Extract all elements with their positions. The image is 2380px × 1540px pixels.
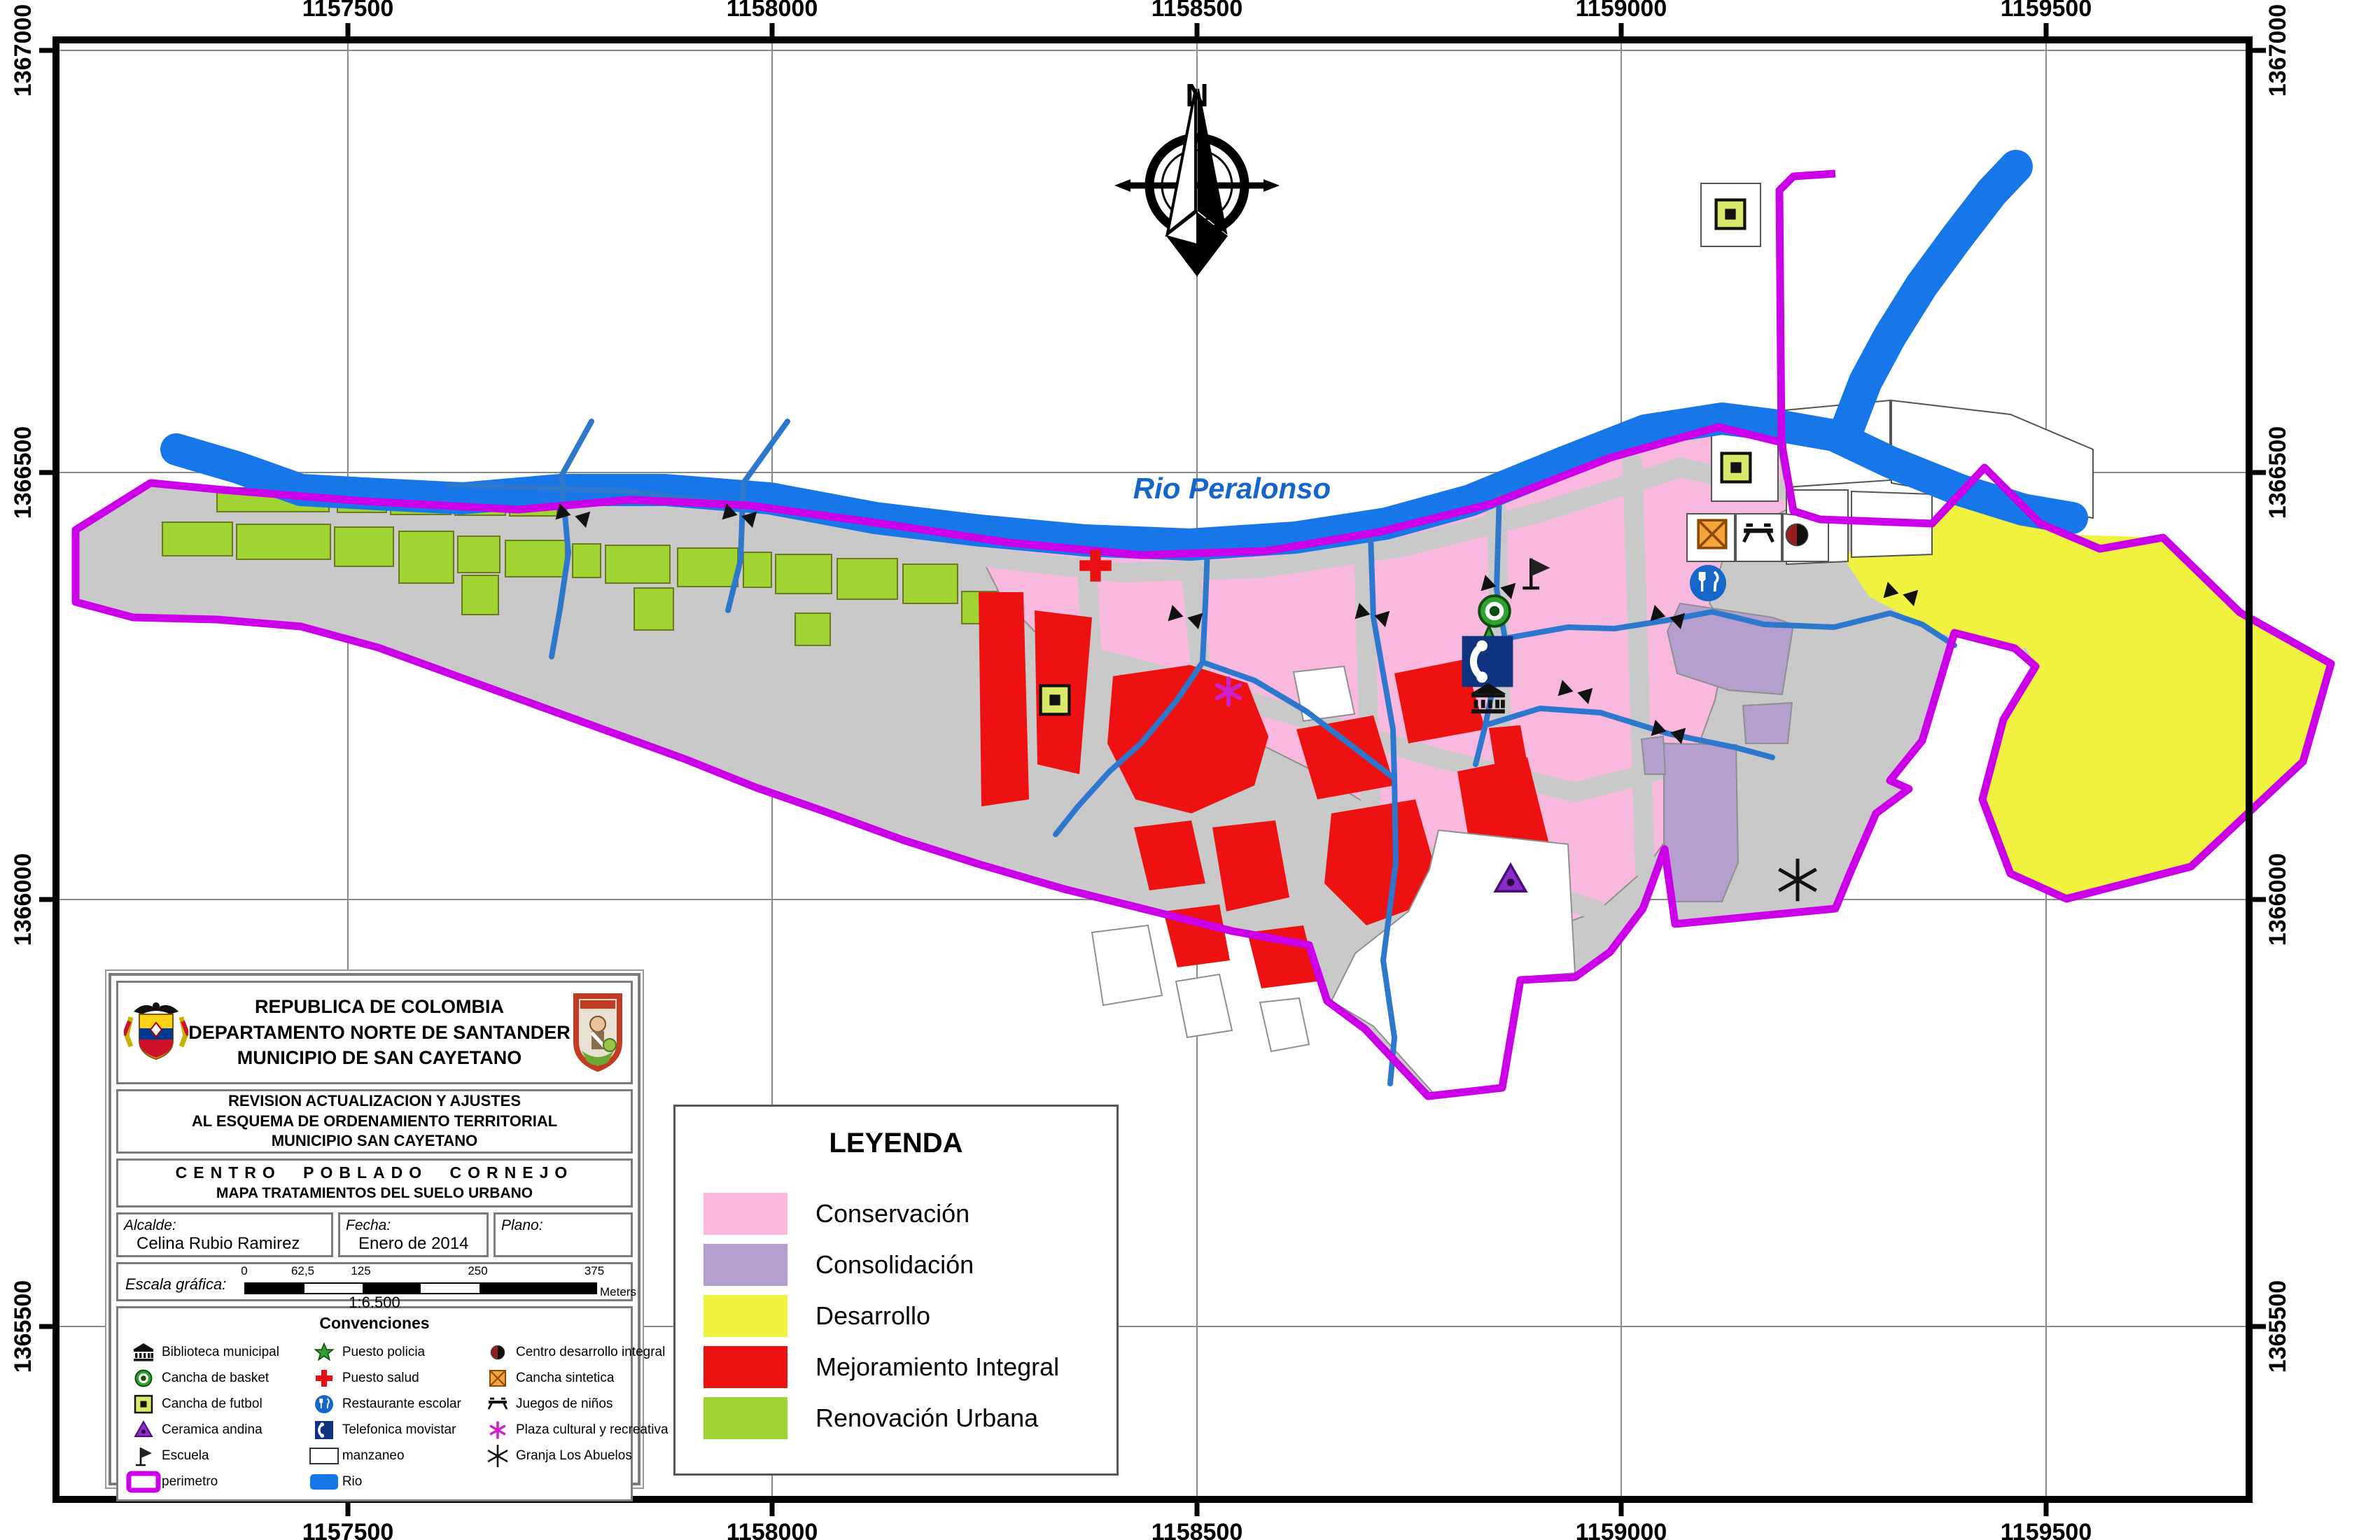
legend-label: Mejoramiento Integral [815, 1352, 1059, 1382]
renovacion-block [743, 552, 771, 587]
renovacion-block [573, 544, 601, 577]
renovacion-block [505, 540, 566, 577]
convention-item: Cancha de futbol [125, 1392, 306, 1417]
convention-label: Ceramica andina [162, 1422, 262, 1438]
convention-item: Restaurante escolar [306, 1392, 479, 1417]
map-name: MAPA TRATAMIENTOS DEL SUELO URBANO [118, 1185, 631, 1202]
scale-tick-label: 250 [468, 1264, 487, 1278]
convention-item: manzaneo [306, 1443, 479, 1469]
convention-label: Centro desarrollo integral [516, 1345, 665, 1360]
coordinate-label-right: 1366500 [2264, 426, 2291, 519]
convention-label: Escuela [162, 1448, 209, 1464]
legend-swatch [703, 1193, 787, 1235]
salud-icon [306, 1366, 342, 1390]
san-cayetano-shield-icon [570, 990, 625, 1074]
field-plano: Plano: [493, 1212, 633, 1257]
white-area [1092, 925, 1162, 1005]
convention-item: Puesto salud [306, 1366, 479, 1392]
telefonica-icon [306, 1418, 342, 1442]
alcalde-value: Celina Rubio Ramirez [136, 1234, 300, 1254]
convention-item: Ceramica andina [125, 1417, 306, 1443]
renovacion-block [837, 559, 897, 599]
conventions-panel: Convenciones Biblioteca municipalCancha … [116, 1306, 633, 1501]
legend-panel: LEYENDA ConservaciónConsolidaciónDesarro… [673, 1105, 1119, 1476]
river-label: Rio Peralonso [1133, 472, 1331, 505]
legend-item: Mejoramiento Integral [703, 1346, 1116, 1388]
field-alcalde: Alcalde: Celina Rubio Ramirez [116, 1212, 333, 1257]
coordinate-label-top: 1158500 [1151, 0, 1243, 22]
sintetica-icon [479, 1366, 516, 1390]
revision-line2: AL ESQUEMA DE ORDENAMIENTO TERRITORIAL [118, 1112, 631, 1132]
title-block-revision: REVISION ACTUALIZACION Y AJUSTES AL ESQU… [116, 1089, 633, 1154]
convention-item: Escuela [125, 1443, 306, 1469]
convention-item: Granja Los Abuelos [479, 1443, 624, 1469]
convention-label: Telefonica movistar [342, 1422, 456, 1438]
convention-label: Granja Los Abuelos [516, 1448, 632, 1464]
title-department: DEPARTAMENTO NORTE DE SANTANDER [188, 1020, 570, 1045]
futbol-icon [1722, 454, 1751, 482]
colombia-coat-of-arms-icon [124, 990, 188, 1074]
plano-label: Plano: [501, 1217, 543, 1234]
renovacion-block [605, 545, 670, 583]
convention-label: Plaza cultural y recreativa [516, 1422, 668, 1438]
legend-title: LEYENDA [703, 1128, 1088, 1159]
convention-item: perimetro [125, 1469, 306, 1495]
title-block-fields: Alcalde: Celina Rubio Ramirez Fecha: Ene… [116, 1212, 633, 1257]
coordinate-label-bottom: 1159500 [2001, 1519, 2092, 1540]
legend-swatch [703, 1295, 787, 1337]
coordinate-label-top: 1158000 [727, 0, 818, 22]
centro-icon [1786, 524, 1807, 545]
white-area [1260, 998, 1309, 1051]
legend-label: Conservación [815, 1199, 969, 1228]
convention-label: Rio [342, 1474, 363, 1490]
perimeter-spur [1779, 174, 1835, 445]
convention-item: Plaza cultural y recreativa [479, 1417, 624, 1443]
title-municipality: MUNICIPIO DE SAN CAYETANO [188, 1045, 570, 1070]
white-area [1294, 666, 1354, 721]
revision-line1: REVISION ACTUALIZACION Y AJUSTES [118, 1091, 631, 1112]
convention-item: Juegos de niños [479, 1392, 624, 1417]
renovacion-block [776, 554, 832, 594]
scale-tick-label: 0 [241, 1264, 247, 1278]
coordinate-label-right: 1365500 [2264, 1280, 2291, 1373]
convention-label: perimetro [162, 1474, 218, 1490]
convention-label: Cancha de basket [162, 1371, 269, 1386]
scale-bar-segment [421, 1284, 479, 1293]
fecha-label: Fecha: [346, 1217, 391, 1234]
convention-label: Juegos de niños [516, 1396, 612, 1412]
conventions-grid: Biblioteca municipalCancha de basketCanc… [125, 1340, 624, 1495]
convention-label: Biblioteca municipal [162, 1345, 279, 1360]
center-poblado-name: CENTRO POBLADO CORNEJO [118, 1163, 631, 1182]
renovacion-block [237, 524, 330, 559]
scale-tick-labels: 062,5125250375 [244, 1264, 594, 1280]
river-arm [1848, 167, 2016, 427]
revision-line3: MUNICIPIO SAN CAYETANO [118, 1131, 631, 1151]
conventions-column: Puesto policiaPuesto saludRestaurante es… [306, 1340, 479, 1495]
basket-icon [125, 1366, 162, 1390]
renovacion-block [795, 613, 830, 645]
convention-label: Cancha sintetica [516, 1371, 614, 1386]
manzaneo-block [1736, 514, 1781, 561]
coordinate-label-left: 1367000 [10, 4, 36, 97]
renovacion-block [634, 588, 673, 630]
manzaneo-icon [306, 1444, 342, 1468]
scale-tick-label: 375 [584, 1264, 604, 1278]
consolidacion-zone [1664, 743, 1738, 902]
desarrollo-zone [1982, 533, 2331, 899]
coordinate-label-left: 1366000 [10, 853, 36, 946]
legend-swatch [703, 1346, 787, 1388]
convention-item: Telefonica movistar [306, 1417, 479, 1443]
renovacion-block [335, 527, 393, 566]
convention-item: Biblioteca municipal [125, 1340, 306, 1366]
title-block-scale: Escala gráfica: 062,5125250375 Meters 1:… [116, 1262, 633, 1301]
coordinate-label-bottom: 1159000 [1576, 1519, 1667, 1540]
scale-tick-label: 62,5 [291, 1264, 314, 1278]
legend-swatch [703, 1244, 787, 1286]
title-block-center-name: CENTRO POBLADO CORNEJO MAPA TRATAMIENTOS… [116, 1158, 633, 1207]
renovacion-block [162, 522, 232, 556]
plaza-icon [479, 1418, 516, 1442]
policia-icon [306, 1340, 342, 1364]
scale-label: Escala gráfica: [125, 1275, 226, 1294]
granja-icon [479, 1444, 516, 1468]
restaurante-icon [306, 1392, 342, 1416]
legend-label: Consolidación [815, 1250, 974, 1280]
conventions-column: Centro desarrollo integralCancha sinteti… [479, 1340, 624, 1495]
coordinate-label-top: 1157500 [302, 0, 394, 22]
convention-label: Cancha de futbol [162, 1396, 262, 1412]
convention-item: Cancha sintetica [479, 1366, 624, 1392]
renovacion-block [678, 548, 738, 587]
legend-items: ConservaciónConsolidaciónDesarrolloMejor… [703, 1193, 1116, 1439]
title-lines: REPUBLICA DE COLOMBIA DEPARTAMENTO NORTE… [188, 994, 570, 1070]
coordinate-label-left: 1365500 [10, 1280, 36, 1373]
convention-label: Puesto policia [342, 1345, 425, 1360]
map-sheet: 1157500115750011580001158000115850011585… [0, 0, 2380, 1540]
coordinate-label-top: 1159500 [2001, 0, 2092, 22]
scale-bar-segment [304, 1284, 363, 1293]
scale-bar-segment [479, 1284, 596, 1293]
title-block: REPUBLICA DE COLOMBIA DEPARTAMENTO NORTE… [108, 973, 640, 1485]
rio-icon [306, 1470, 342, 1494]
convention-item: Puesto policia [306, 1340, 479, 1366]
renovacion-block [903, 564, 958, 603]
coordinate-label-bottom: 1157500 [302, 1519, 394, 1540]
sintetica-icon [1698, 520, 1726, 548]
street [1632, 463, 1645, 869]
legend-item: Consolidación [703, 1244, 1116, 1286]
consolidacion-zone [1743, 703, 1792, 743]
basket-icon [1479, 596, 1510, 626]
convention-item: Centro desarrollo integral [479, 1340, 624, 1366]
coordinate-label-top: 1159000 [1576, 0, 1667, 22]
coordinate-label-bottom: 1158000 [727, 1519, 818, 1540]
coordinate-label-right: 1366000 [2264, 853, 2291, 946]
scale-bar-segment [246, 1284, 304, 1293]
renovacion-block [462, 575, 498, 615]
scale-ratio: 1:6.500 [118, 1294, 631, 1312]
consolidacion-zone [1641, 736, 1665, 774]
legend-label: Renovación Urbana [815, 1403, 1038, 1433]
coordinate-label-right: 1367000 [2264, 4, 2291, 97]
centro-icon [479, 1340, 516, 1364]
restaurante-icon [1690, 565, 1726, 601]
biblioteca-icon [125, 1340, 162, 1364]
conventions-column: Biblioteca municipalCancha de basketCanc… [125, 1340, 306, 1495]
ceramica-icon [125, 1418, 162, 1442]
futbol-icon [125, 1392, 162, 1416]
legend-item: Desarrollo [703, 1295, 1116, 1337]
mejoramiento-block [979, 592, 1029, 806]
futbol-icon [1041, 686, 1070, 715]
fecha-value: Enero de 2014 [358, 1234, 468, 1254]
title-country: REPUBLICA DE COLOMBIA [188, 994, 570, 1019]
telefonica-icon [1462, 636, 1513, 687]
conventions-title: Convenciones [125, 1314, 624, 1333]
coordinate-label-left: 1366500 [10, 426, 36, 519]
legend-swatch [703, 1397, 787, 1439]
renovacion-block [399, 531, 454, 583]
convention-label: manzaneo [342, 1448, 405, 1464]
legend-item: Conservación [703, 1193, 1116, 1235]
convention-label: Restaurante escolar [342, 1396, 461, 1412]
juegos-icon [479, 1392, 516, 1416]
convention-item: Rio [306, 1469, 479, 1495]
compass-north-label: N [1185, 77, 1208, 113]
scale-bar-segment [363, 1284, 421, 1293]
legend-item: Renovación Urbana [703, 1397, 1116, 1439]
convention-label: Puesto salud [342, 1371, 419, 1386]
title-block-header: REPUBLICA DE COLOMBIA DEPARTAMENTO NORTE… [116, 981, 633, 1084]
field-fecha: Fecha: Enero de 2014 [338, 1212, 489, 1257]
white-area [1176, 974, 1232, 1037]
convention-item: Cancha de basket [125, 1366, 306, 1392]
legend-label: Desarrollo [815, 1301, 930, 1331]
scale-bar [244, 1282, 597, 1294]
perimetro-icon [125, 1470, 162, 1494]
scale-tick-label: 125 [351, 1264, 370, 1278]
futbol-icon [1716, 200, 1745, 229]
coordinate-label-bottom: 1158500 [1151, 1519, 1243, 1540]
alcalde-label: Alcalde: [124, 1217, 176, 1234]
renovacion-block [458, 536, 500, 573]
escuela-icon [125, 1444, 162, 1468]
